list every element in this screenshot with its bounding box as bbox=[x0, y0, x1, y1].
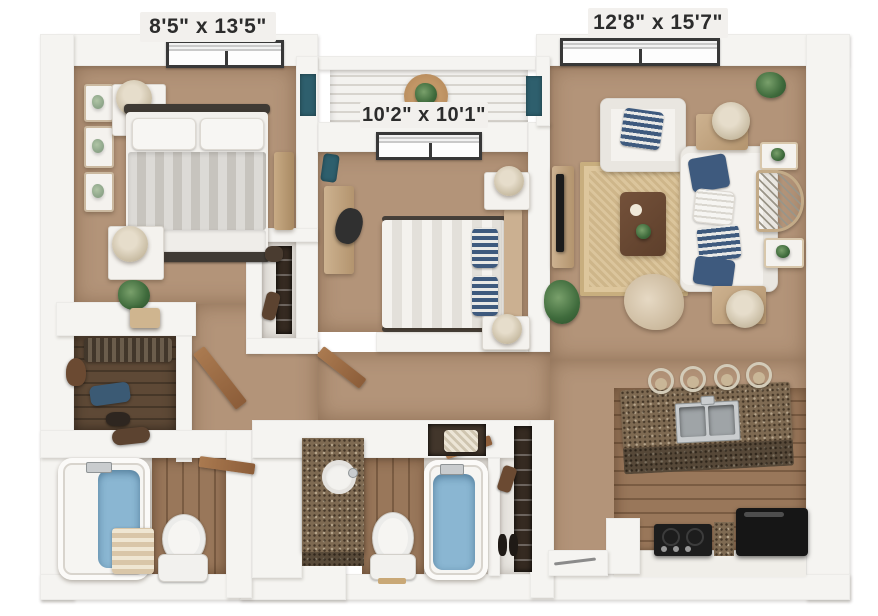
toilet-tank bbox=[370, 554, 416, 580]
wall-art-frame bbox=[84, 84, 114, 122]
wall-bathroom-b-top bbox=[252, 420, 538, 458]
floor-lamp bbox=[726, 290, 764, 328]
stool-seat bbox=[753, 372, 765, 384]
wall-bedroom-middle-right bbox=[528, 122, 550, 352]
bedroom-middle-window bbox=[376, 132, 482, 160]
bar-stool bbox=[680, 366, 706, 392]
hanging-clothes bbox=[84, 338, 172, 362]
wall-art-frame bbox=[84, 126, 114, 168]
stove-knob bbox=[685, 546, 691, 552]
tv bbox=[556, 174, 564, 252]
potted-plant bbox=[544, 280, 580, 324]
sink-basin bbox=[679, 406, 707, 437]
art-print bbox=[92, 184, 104, 198]
dresser bbox=[274, 152, 294, 230]
bed-pillow bbox=[200, 118, 264, 150]
balcony-panel-left bbox=[300, 74, 316, 116]
table-lamp bbox=[492, 314, 522, 344]
throw-pillow bbox=[687, 153, 730, 193]
art-print bbox=[92, 95, 104, 109]
balcony-panel-right bbox=[526, 76, 542, 116]
art-print bbox=[92, 139, 104, 153]
tub-faucet bbox=[86, 462, 112, 473]
room-dimension-label-living-room: 12'8" x 15'7" bbox=[588, 8, 728, 38]
bar-stool bbox=[746, 362, 772, 388]
accent-chair bbox=[624, 274, 684, 330]
stove-burner bbox=[686, 528, 704, 546]
bed-pillow bbox=[472, 276, 498, 316]
kitchen-sink bbox=[675, 400, 741, 443]
shoes bbox=[509, 534, 518, 556]
bar-stool bbox=[714, 364, 740, 390]
window-blinds bbox=[169, 43, 281, 51]
bed-duvet bbox=[128, 152, 266, 230]
window-blinds bbox=[379, 135, 479, 143]
throw-pillow bbox=[692, 255, 736, 288]
wall-balcony-top bbox=[318, 56, 536, 70]
table-plant bbox=[636, 224, 651, 239]
refrigerator bbox=[736, 508, 808, 556]
shoes bbox=[265, 246, 283, 262]
bar-stool bbox=[648, 368, 674, 394]
corner-plant bbox=[756, 72, 786, 98]
bed-pillow bbox=[132, 118, 196, 150]
stove-knob bbox=[661, 546, 667, 552]
table-lamp bbox=[112, 226, 148, 262]
bed-pillow bbox=[472, 228, 498, 268]
living-room-window bbox=[560, 38, 720, 66]
potted-plant bbox=[118, 280, 150, 310]
stool-seat bbox=[687, 376, 699, 388]
kitchen-island bbox=[620, 382, 794, 475]
wall-closet-small-bottom bbox=[246, 338, 318, 354]
fridge-handle bbox=[744, 512, 784, 517]
bath-mat bbox=[112, 528, 154, 574]
wall-decor-tray bbox=[764, 238, 804, 268]
throw-pillow bbox=[692, 188, 735, 226]
floor-plan: 8'5" x 13'5" 12'8" x 15'7" 10'2" x 10'1" bbox=[0, 0, 878, 616]
decor-box bbox=[130, 308, 160, 328]
toilet-step bbox=[378, 578, 406, 584]
tray-plant bbox=[776, 245, 790, 258]
wall-bathroom-b-block bbox=[252, 458, 302, 578]
stool-seat bbox=[655, 378, 667, 390]
hallway-south-floor bbox=[318, 352, 550, 420]
bedroom-left-window bbox=[166, 40, 284, 68]
toilet-tank bbox=[158, 554, 208, 582]
sink-basin bbox=[708, 405, 736, 436]
stove bbox=[654, 524, 712, 556]
stove-knob bbox=[673, 546, 679, 552]
wall-right bbox=[806, 34, 850, 600]
stove-burner bbox=[662, 528, 680, 546]
sink-faucet bbox=[700, 396, 714, 406]
vanity-counter bbox=[302, 438, 364, 552]
stool-seat bbox=[721, 374, 733, 386]
hanging-bag bbox=[66, 358, 86, 386]
shoes bbox=[498, 534, 507, 556]
room-dimension-label-bedroom-middle: 10'2" x 10'1" bbox=[360, 102, 488, 128]
tub-faucet bbox=[440, 464, 464, 475]
storage-basket bbox=[444, 430, 478, 452]
wall-closet-right-divider bbox=[488, 458, 500, 576]
room-dimension-label-bedroom-left: 8'5" x 13'5" bbox=[140, 12, 276, 42]
sink-faucet bbox=[348, 468, 358, 478]
tray-plant bbox=[771, 148, 785, 161]
table-decor bbox=[630, 204, 642, 216]
wall-decor-tray bbox=[760, 142, 798, 170]
wall-art-frame bbox=[84, 172, 114, 212]
table-lamp bbox=[494, 166, 524, 196]
counter-granite bbox=[714, 522, 734, 556]
shoes bbox=[106, 412, 130, 426]
bathtub-water bbox=[433, 474, 475, 570]
window-blinds bbox=[563, 41, 717, 49]
counter-end-panel bbox=[606, 518, 640, 574]
vanity-front bbox=[302, 552, 364, 566]
floor-lamp bbox=[712, 102, 750, 140]
wall-bathrooms-divider bbox=[226, 430, 252, 598]
throw-pillow bbox=[620, 107, 665, 150]
